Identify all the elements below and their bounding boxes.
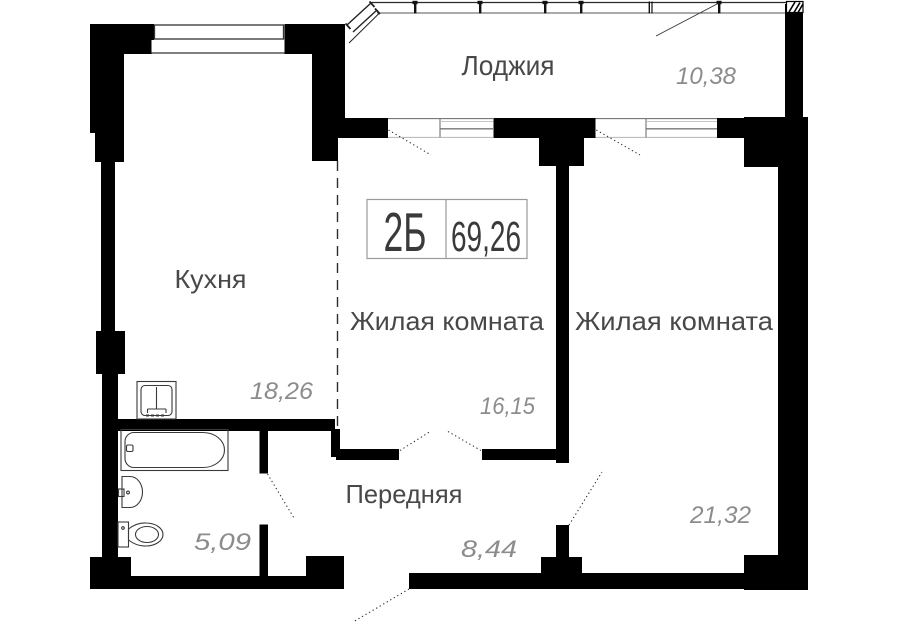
svg-text:Кухня: Кухня [175,264,247,294]
svg-text:21,32: 21,32 [689,502,751,529]
svg-text:10,38: 10,38 [676,63,737,90]
svg-text:Передняя: Передняя [346,479,463,509]
svg-text:8,44: 8,44 [461,536,517,563]
svg-text:18,26: 18,26 [250,378,314,405]
svg-text:Жилая комната: Жилая комната [575,306,774,336]
svg-text:69,26: 69,26 [451,213,521,261]
svg-text:5,09: 5,09 [194,529,251,556]
svg-text:Жилая комната: Жилая комната [350,306,545,336]
svg-text:16,15: 16,15 [480,393,536,420]
svg-text:2Б: 2Б [384,201,427,263]
svg-text:Лоджия: Лоджия [462,50,555,81]
